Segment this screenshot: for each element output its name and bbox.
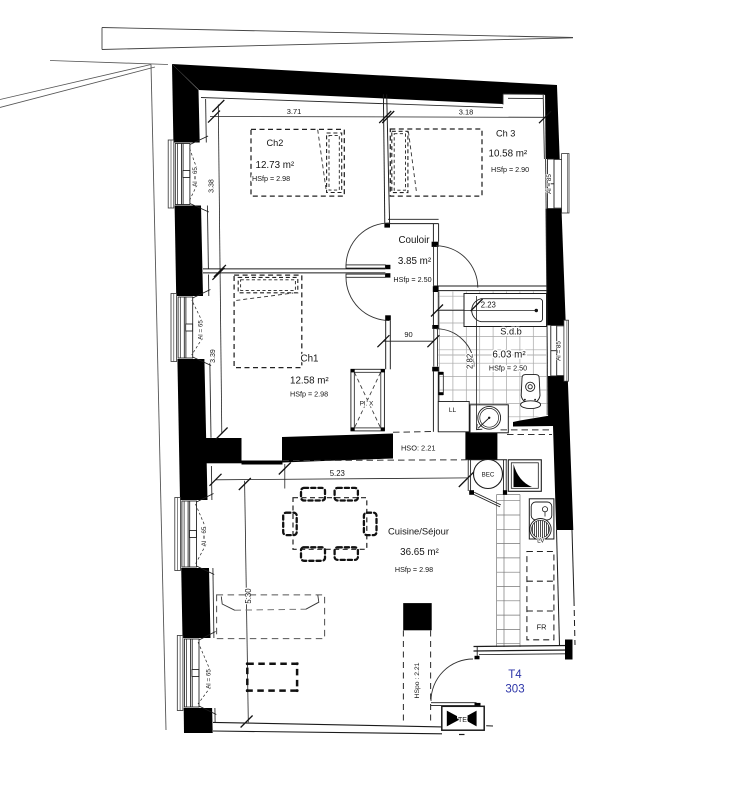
- svg-text:3.18: 3.18: [459, 108, 474, 117]
- svg-text:5.30: 5.30: [244, 588, 253, 604]
- svg-text:90: 90: [404, 330, 412, 339]
- svg-text:HSO: 2.21: HSO: 2.21: [401, 443, 436, 452]
- svg-text:HSfp = 2.98: HSfp = 2.98: [395, 565, 433, 574]
- svg-text:LL: LL: [449, 407, 457, 414]
- svg-text:3.38: 3.38: [209, 179, 216, 193]
- svg-text:3.85 m²: 3.85 m²: [398, 256, 432, 267]
- svg-text:HSfp = 2.50: HSfp = 2.50: [393, 275, 431, 284]
- svg-text:S.d.b: S.d.b: [500, 327, 521, 337]
- svg-text:12.73 m²: 12.73 m²: [256, 160, 295, 171]
- svg-text:HSfp = 2.50: HSfp = 2.50: [489, 364, 527, 373]
- svg-text:Al = 85: Al = 85: [556, 341, 563, 361]
- svg-text:HSfp = 2.98: HSfp = 2.98: [290, 390, 328, 399]
- svg-text:Al = 65: Al = 65: [198, 320, 205, 340]
- svg-text:36.65 m²: 36.65 m²: [400, 547, 439, 558]
- svg-text:6.03 m²: 6.03 m²: [492, 350, 526, 361]
- svg-text:Al = 65: Al = 65: [206, 669, 213, 689]
- svg-text:Ch2: Ch2: [267, 138, 284, 148]
- svg-text:10.58 m²: 10.58 m²: [489, 149, 528, 160]
- svg-text:LV: LV: [537, 538, 545, 545]
- svg-text:Al = 65: Al = 65: [201, 526, 208, 546]
- svg-text:FR: FR: [537, 623, 547, 632]
- svg-text:HSfp = 2.98: HSfp = 2.98: [252, 174, 290, 183]
- svg-text:Pl. X: Pl. X: [360, 401, 374, 408]
- svg-text:303: 303: [505, 684, 524, 696]
- svg-text:Al = 65: Al = 65: [192, 167, 199, 187]
- svg-text:Ch 3: Ch 3: [496, 128, 515, 138]
- svg-text:3.39: 3.39: [210, 349, 217, 363]
- svg-text:TE: TE: [458, 717, 467, 724]
- svg-text:Cuisine/Séjour: Cuisine/Séjour: [388, 526, 449, 537]
- svg-text:2.23: 2.23: [481, 300, 496, 309]
- svg-text:HSfp = 2.90: HSfp = 2.90: [491, 165, 529, 174]
- svg-text:Ch1: Ch1: [301, 354, 319, 365]
- svg-text:12.58 m²: 12.58 m²: [290, 376, 329, 387]
- svg-text:Couloir: Couloir: [398, 235, 430, 246]
- svg-text:5.23: 5.23: [330, 469, 345, 478]
- svg-text:BEC: BEC: [482, 472, 495, 479]
- svg-text:2.82: 2.82: [465, 354, 474, 369]
- svg-text:3.71: 3.71: [287, 107, 302, 116]
- svg-text:T4: T4: [508, 669, 522, 681]
- svg-text:Al = 85: Al = 85: [546, 174, 553, 194]
- svg-text:HSpo : 2.21: HSpo : 2.21: [414, 662, 421, 698]
